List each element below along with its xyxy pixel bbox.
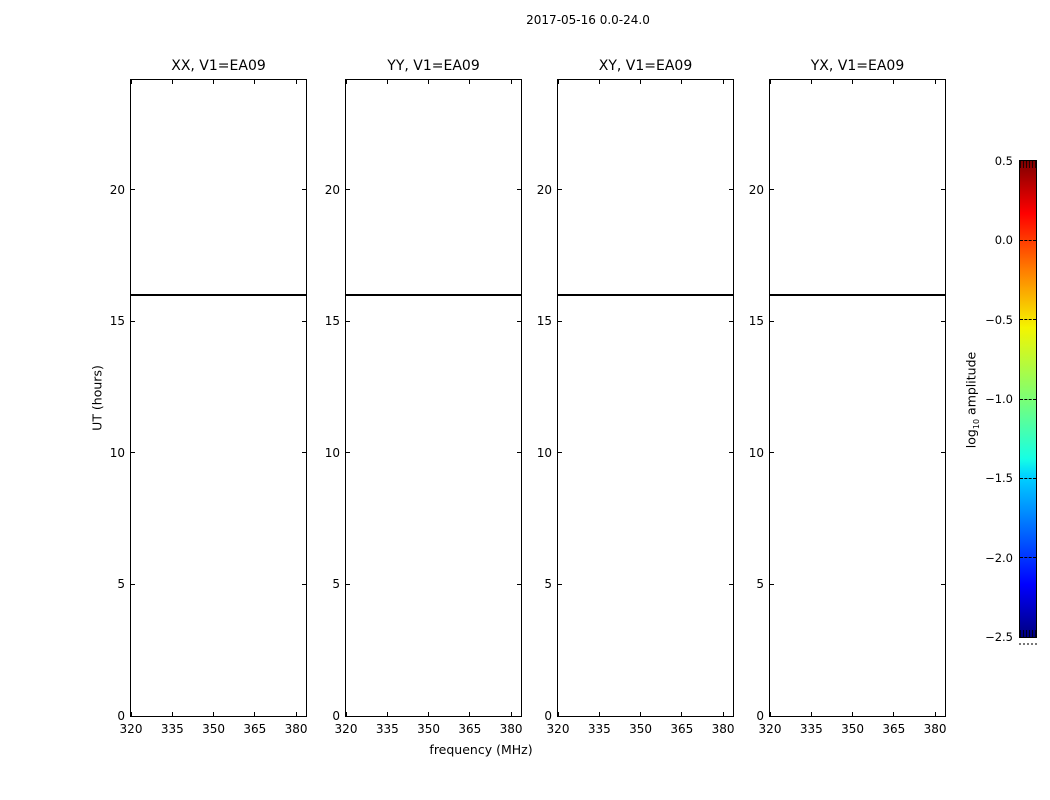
- y-tick-mark: [517, 584, 521, 585]
- x-tick-label: 335: [800, 722, 823, 736]
- x-tick-mark: [723, 712, 724, 716]
- x-tick-mark: [296, 80, 297, 84]
- x-tick-mark: [681, 712, 682, 716]
- x-tick-label: 380: [285, 722, 308, 736]
- data-row-line: [558, 294, 733, 296]
- colorbar-label-suffix: amplitude: [963, 352, 978, 419]
- subplot-title: YY, V1=EA09: [387, 58, 479, 74]
- y-tick-mark: [941, 716, 945, 717]
- data-row-line: [346, 294, 521, 296]
- subplot-yx: YX, V1=EA0932033535036538005101520: [769, 79, 946, 717]
- y-tick-label: 0: [117, 709, 125, 723]
- subplot-title: XX, V1=EA09: [171, 58, 266, 74]
- colorbar-tick-mark: [1020, 399, 1036, 400]
- y-tick-mark: [558, 189, 562, 190]
- colorbar-tick-label: −2.5: [985, 630, 1013, 644]
- x-tick-mark: [469, 80, 470, 84]
- y-tick-mark: [517, 321, 521, 322]
- x-tick-label: 320: [120, 722, 143, 736]
- colorbar-bottom-hatch: [1020, 630, 1036, 637]
- x-tick-label: 365: [882, 722, 905, 736]
- x-tick-mark: [172, 712, 173, 716]
- y-tick-mark: [517, 716, 521, 717]
- x-tick-label: 335: [161, 722, 184, 736]
- x-tick-mark: [254, 80, 255, 84]
- x-tick-mark: [852, 80, 853, 84]
- x-tick-mark: [935, 712, 936, 716]
- figure-title: 2017-05-16 0.0-24.0: [526, 13, 650, 27]
- colorbar-tick-label: 0.5: [995, 154, 1013, 168]
- colorbar-tick-mark: [1020, 557, 1036, 558]
- y-tick-label: 5: [332, 577, 340, 591]
- x-tick-mark: [640, 80, 641, 84]
- x-tick-mark: [893, 80, 894, 84]
- y-tick-label: 5: [756, 577, 764, 591]
- y-tick-mark: [302, 716, 306, 717]
- x-tick-label: 350: [629, 722, 652, 736]
- x-axis-label: frequency (MHz): [429, 742, 532, 757]
- y-tick-mark: [941, 189, 945, 190]
- data-row-line: [131, 294, 306, 296]
- x-tick-mark: [511, 80, 512, 84]
- y-tick-mark: [346, 716, 350, 717]
- x-tick-mark: [428, 712, 429, 716]
- y-tick-mark: [346, 584, 350, 585]
- y-tick-mark: [770, 584, 774, 585]
- x-tick-label: 350: [841, 722, 864, 736]
- x-tick-mark: [640, 712, 641, 716]
- y-tick-label: 0: [332, 709, 340, 723]
- colorbar-tick-label: 0.0: [995, 233, 1013, 247]
- x-tick-mark: [428, 80, 429, 84]
- y-tick-mark: [517, 189, 521, 190]
- subplot-title: YX, V1=EA09: [811, 58, 905, 74]
- x-tick-label: 380: [712, 722, 735, 736]
- x-tick-mark: [387, 712, 388, 716]
- subplot-title: XY, V1=EA09: [599, 58, 693, 74]
- colorbar-tick-label: −1.0: [985, 392, 1013, 406]
- x-tick-label: 320: [547, 722, 570, 736]
- x-tick-mark: [770, 80, 771, 84]
- subplot-xy: XY, V1=EA0932033535036538005101520: [557, 79, 734, 717]
- y-tick-label: 20: [110, 183, 125, 197]
- x-tick-mark: [811, 80, 812, 84]
- x-tick-mark: [387, 80, 388, 84]
- subplot-yy: YY, V1=EA0932033535036538005101520: [345, 79, 522, 717]
- y-tick-mark: [729, 716, 733, 717]
- x-tick-mark: [723, 80, 724, 84]
- x-tick-label: 365: [670, 722, 693, 736]
- x-tick-mark: [346, 80, 347, 84]
- x-tick-label: 380: [500, 722, 523, 736]
- y-tick-mark: [729, 584, 733, 585]
- colorbar-tick-mark: [1020, 478, 1036, 479]
- y-tick-label: 10: [537, 446, 552, 460]
- colorbar-tick-label: −1.5: [985, 471, 1013, 485]
- y-tick-label: 5: [544, 577, 552, 591]
- y-tick-mark: [131, 321, 135, 322]
- colorbar-tick-mark: [1020, 240, 1036, 241]
- y-tick-mark: [941, 452, 945, 453]
- x-tick-mark: [511, 712, 512, 716]
- x-tick-mark: [599, 712, 600, 716]
- colorbar-label-subscript: 10: [972, 419, 981, 429]
- y-tick-mark: [517, 452, 521, 453]
- colorbar-extend-dotted-line: [1019, 643, 1037, 645]
- colorbar-label: log10 amplitude: [963, 352, 981, 448]
- x-tick-mark: [131, 80, 132, 84]
- x-tick-mark: [172, 80, 173, 84]
- colorbar-tick-mark: [1020, 319, 1036, 320]
- colorbar-tick-label: −0.5: [985, 313, 1013, 327]
- x-tick-mark: [681, 80, 682, 84]
- y-tick-mark: [729, 321, 733, 322]
- x-tick-mark: [296, 712, 297, 716]
- y-tick-label: 10: [110, 446, 125, 460]
- y-tick-label: 15: [110, 314, 125, 328]
- y-tick-mark: [729, 452, 733, 453]
- colorbar-tick-label: −2.0: [985, 551, 1013, 565]
- y-tick-label: 20: [749, 183, 764, 197]
- y-tick-mark: [729, 189, 733, 190]
- y-tick-mark: [346, 321, 350, 322]
- x-tick-mark: [213, 80, 214, 84]
- x-tick-label: 320: [759, 722, 782, 736]
- y-tick-mark: [558, 321, 562, 322]
- y-tick-mark: [131, 189, 135, 190]
- y-tick-mark: [558, 584, 562, 585]
- y-tick-mark: [302, 452, 306, 453]
- x-tick-label: 335: [376, 722, 399, 736]
- y-tick-mark: [770, 716, 774, 717]
- y-tick-label: 15: [325, 314, 340, 328]
- y-tick-mark: [941, 321, 945, 322]
- y-tick-label: 0: [544, 709, 552, 723]
- y-tick-label: 5: [117, 577, 125, 591]
- x-tick-mark: [811, 712, 812, 716]
- y-tick-label: 0: [756, 709, 764, 723]
- colorbar: 0.50.0−0.5−1.0−1.5−2.0−2.5: [1019, 160, 1037, 638]
- x-tick-mark: [893, 712, 894, 716]
- x-tick-mark: [213, 712, 214, 716]
- subplot-xx: XX, V1=EA0932033535036538005101520: [130, 79, 307, 717]
- x-tick-mark: [254, 712, 255, 716]
- x-tick-label: 365: [458, 722, 481, 736]
- x-tick-mark: [935, 80, 936, 84]
- x-tick-label: 350: [202, 722, 225, 736]
- x-tick-label: 320: [335, 722, 358, 736]
- y-tick-label: 10: [325, 446, 340, 460]
- x-tick-mark: [558, 80, 559, 84]
- colorbar-label-prefix: log: [963, 429, 978, 448]
- colorbar-top-hatch: [1020, 161, 1036, 168]
- y-tick-mark: [302, 189, 306, 190]
- y-tick-mark: [131, 452, 135, 453]
- y-tick-mark: [346, 452, 350, 453]
- x-tick-mark: [599, 80, 600, 84]
- y-tick-label: 20: [325, 183, 340, 197]
- x-tick-label: 380: [924, 722, 947, 736]
- y-tick-mark: [346, 189, 350, 190]
- y-tick-label: 15: [749, 314, 764, 328]
- x-tick-mark: [469, 712, 470, 716]
- y-tick-mark: [770, 321, 774, 322]
- y-tick-mark: [558, 452, 562, 453]
- y-tick-label: 20: [537, 183, 552, 197]
- y-tick-mark: [770, 452, 774, 453]
- x-tick-label: 365: [243, 722, 266, 736]
- x-tick-label: 335: [588, 722, 611, 736]
- y-tick-mark: [558, 716, 562, 717]
- y-tick-mark: [302, 321, 306, 322]
- figure-canvas: 2017-05-16 0.0-24.0 XX, V1=EA09320335350…: [0, 0, 1050, 800]
- y-tick-mark: [941, 584, 945, 585]
- x-tick-label: 350: [417, 722, 440, 736]
- y-tick-mark: [131, 716, 135, 717]
- y-tick-mark: [302, 584, 306, 585]
- x-tick-mark: [852, 712, 853, 716]
- y-tick-label: 15: [537, 314, 552, 328]
- y-tick-mark: [131, 584, 135, 585]
- y-axis-label: UT (hours): [90, 365, 105, 431]
- y-tick-mark: [770, 189, 774, 190]
- y-tick-label: 10: [749, 446, 764, 460]
- data-row-line: [770, 294, 945, 296]
